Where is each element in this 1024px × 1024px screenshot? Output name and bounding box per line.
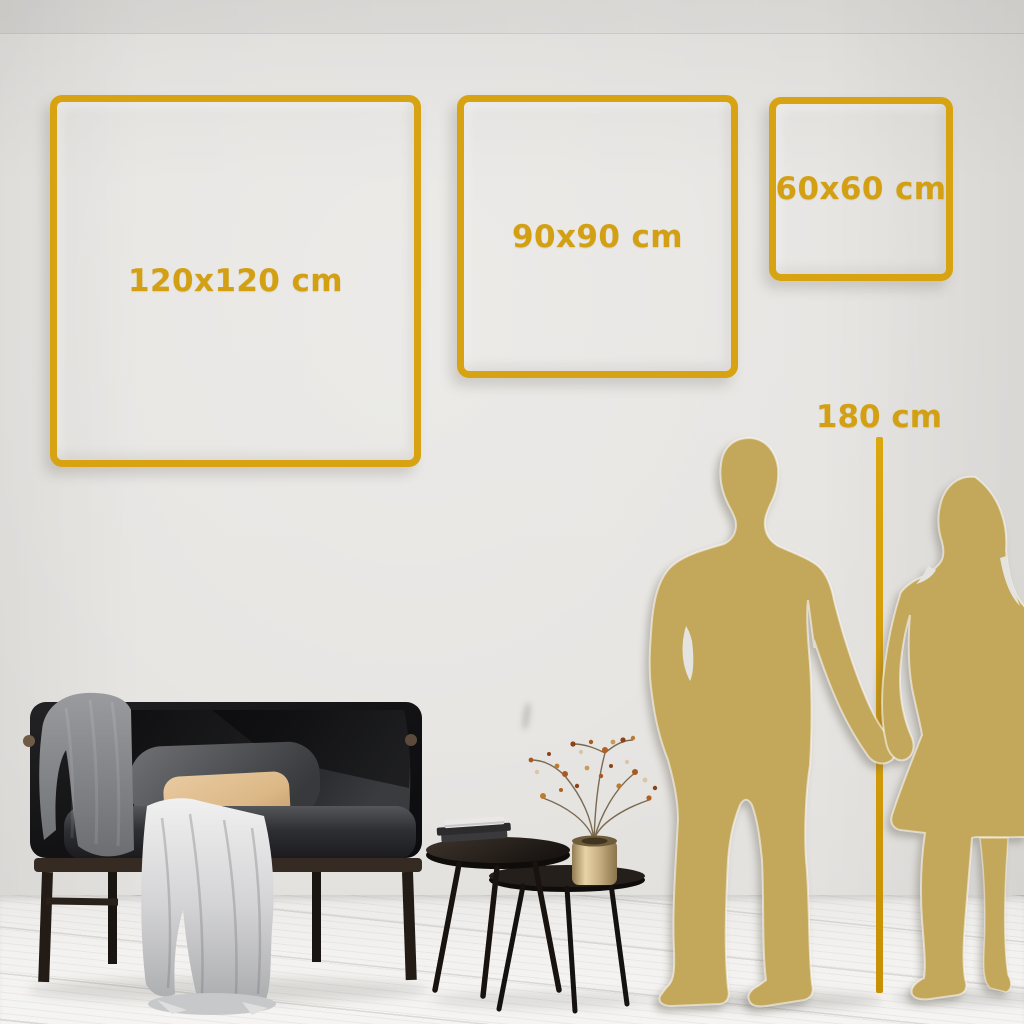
large-table bbox=[426, 837, 570, 996]
size-guide-scene: { "scene": { "type": "wall-art-size-guid… bbox=[0, 0, 1024, 1024]
sofa bbox=[12, 688, 442, 1018]
ceiling-band bbox=[0, 0, 1024, 33]
couple-silhouette-illustration bbox=[628, 430, 1024, 1010]
couple-silhouette bbox=[628, 430, 1024, 1010]
sofa-illustration bbox=[12, 688, 442, 1018]
sofa-leg bbox=[108, 872, 117, 964]
sofa-leg bbox=[38, 872, 53, 982]
sofa-stretcher bbox=[46, 897, 118, 905]
ceiling-line bbox=[0, 33, 1024, 34]
size-frame-90: 90x90 cm bbox=[457, 95, 738, 378]
height-marker-label: 180 cm bbox=[816, 399, 942, 435]
woman-back-leg bbox=[980, 838, 1011, 992]
small-table bbox=[489, 865, 645, 1011]
size-frame-60: 60x60 cm bbox=[769, 97, 953, 281]
size-label-90: 90x90 cm bbox=[512, 219, 683, 255]
size-label-60: 60x60 cm bbox=[776, 171, 947, 207]
sofa-wood-cap-left bbox=[23, 735, 35, 747]
white-throw-blanket bbox=[141, 798, 273, 1009]
brass-vase bbox=[572, 836, 617, 886]
man-silhouette bbox=[650, 438, 896, 1006]
size-label-120: 120x120 cm bbox=[128, 263, 343, 299]
size-frame-120: 120x120 cm bbox=[50, 95, 421, 467]
sofa-leg bbox=[312, 872, 321, 962]
wall-smudge bbox=[521, 702, 532, 731]
